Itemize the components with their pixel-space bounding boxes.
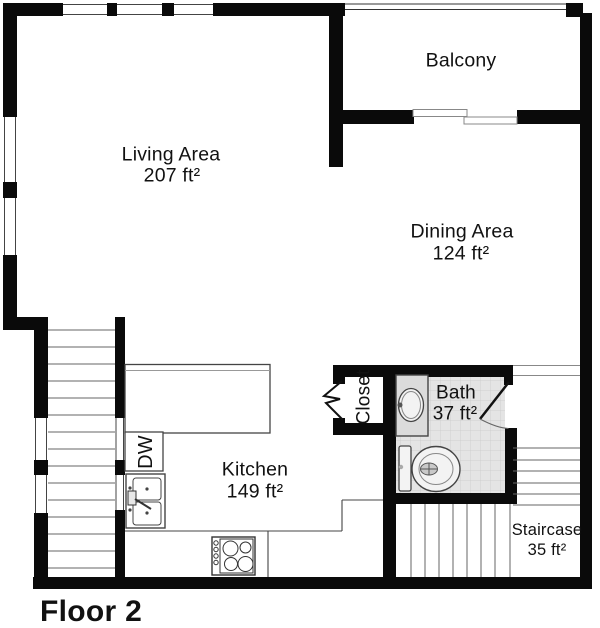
kitchen-label: Kitchen — [222, 460, 288, 480]
floor-title: Floor 2 — [40, 595, 142, 628]
toilet-icon — [399, 446, 460, 492]
interior-walls — [115, 3, 580, 577]
kitchen-size: 149 ft² — [227, 482, 284, 502]
living-area-label: Living Area — [122, 145, 221, 165]
window-left-4 — [34, 475, 48, 513]
window-top-2 — [117, 3, 162, 16]
bathroom-vanity-sink-icon — [396, 375, 428, 436]
balcony-sliding-door — [413, 110, 517, 125]
dining-area-size: 124 ft² — [433, 244, 490, 264]
kitchen-sink-icon — [126, 474, 165, 528]
living-dining-divider-wall — [329, 3, 343, 167]
bath-label: Bath — [436, 384, 476, 403]
bath-size: 37 ft² — [433, 405, 478, 424]
window-left-1 — [3, 117, 17, 182]
closet-bifold-door-icon — [324, 381, 343, 420]
left-staircase-treads — [48, 330, 115, 568]
staircase-label: Staircase — [512, 522, 583, 539]
window-left-2 — [3, 198, 17, 255]
staircase-size: 35 ft² — [528, 542, 567, 559]
windows — [3, 3, 213, 513]
window-left-3 — [34, 418, 48, 460]
stair-landing-edge — [513, 366, 580, 376]
window-top-3 — [174, 3, 213, 16]
balcony-railing — [345, 4, 566, 10]
lower-staircase-treads — [411, 504, 510, 577]
closet-label: Closet — [355, 369, 374, 424]
right-staircase-treads — [513, 366, 580, 506]
dining-area-label: Dining Area — [410, 222, 513, 242]
dishwasher-label: DW — [136, 435, 156, 469]
floor-plan: Living Area 207 ft² Balcony Dining Area … — [0, 0, 600, 628]
floor-plan-drawing — [0, 0, 600, 628]
living-area-size: 207 ft² — [144, 166, 201, 186]
balcony-label: Balcony — [426, 51, 497, 71]
stove-icon — [212, 537, 255, 575]
window-top-1 — [63, 3, 107, 16]
